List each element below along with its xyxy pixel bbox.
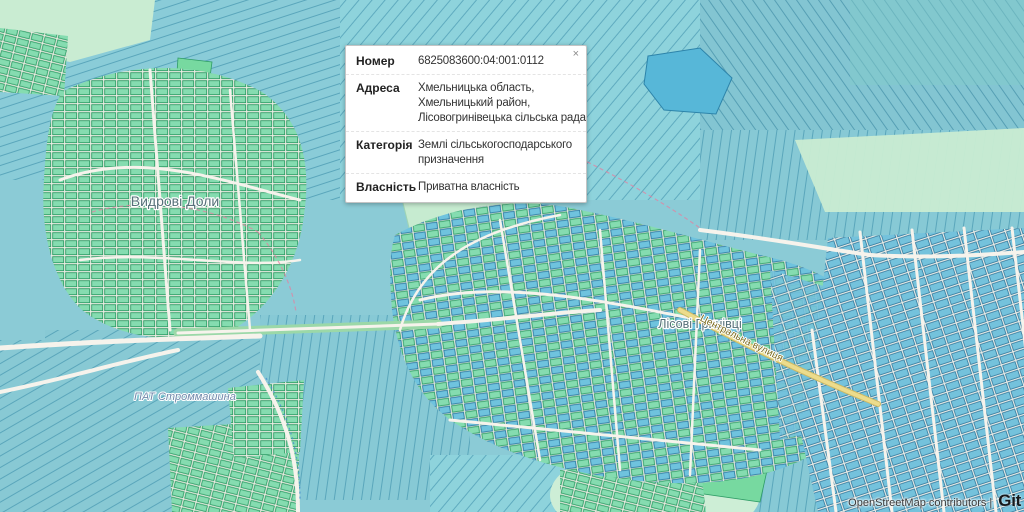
- popup-address-label: Адреса: [356, 81, 418, 126]
- popup-number-label: Номер: [356, 54, 418, 69]
- popup-row-category: Категорія Землі сільськогосподарського п…: [346, 132, 586, 174]
- popup-ownership-label: Власність: [356, 180, 418, 195]
- settlement-label-nw: Видрові Доли: [131, 193, 219, 209]
- popup-address-value: Хмельницька область, Хмельницький район,…: [418, 81, 586, 126]
- enterprise-label: ПАТ Строммашина: [134, 391, 236, 403]
- category-line: Землі сільськогосподарського: [418, 138, 576, 153]
- address-line: Хмельницький район,: [418, 96, 586, 111]
- popup-number-value: 6825083600:04:001:0112: [418, 54, 576, 69]
- popup-close-button[interactable]: ×: [573, 49, 579, 60]
- popup-category-label: Категорія: [356, 138, 418, 168]
- popup-category-value: Землі сільськогосподарського призначення: [418, 138, 576, 168]
- parcel-info-popup: × Номер 6825083600:04:001:0112 Адреса Хм…: [345, 45, 587, 203]
- github-logo[interactable]: Git: [998, 491, 1021, 511]
- address-line: Лісовогринівецька сільська рада: [418, 111, 586, 126]
- map-viewport[interactable]: Видрові Доли Лісові Гринівці ПАТ Стромма…: [0, 0, 1024, 512]
- address-line: Хмельницька область,: [418, 81, 586, 96]
- popup-row-number: Номер 6825083600:04:001:0112: [346, 48, 586, 75]
- popup-row-address: Адреса Хмельницька область, Хмельницький…: [346, 75, 586, 132]
- map-attribution: OpenStreetMap contributors | Git: [848, 491, 1021, 511]
- popup-row-ownership: Власність Приватна власність: [346, 174, 586, 200]
- osm-attribution-link[interactable]: OpenStreetMap contributors |: [848, 497, 992, 509]
- category-line: призначення: [418, 153, 576, 168]
- popup-ownership-value: Приватна власність: [418, 180, 576, 195]
